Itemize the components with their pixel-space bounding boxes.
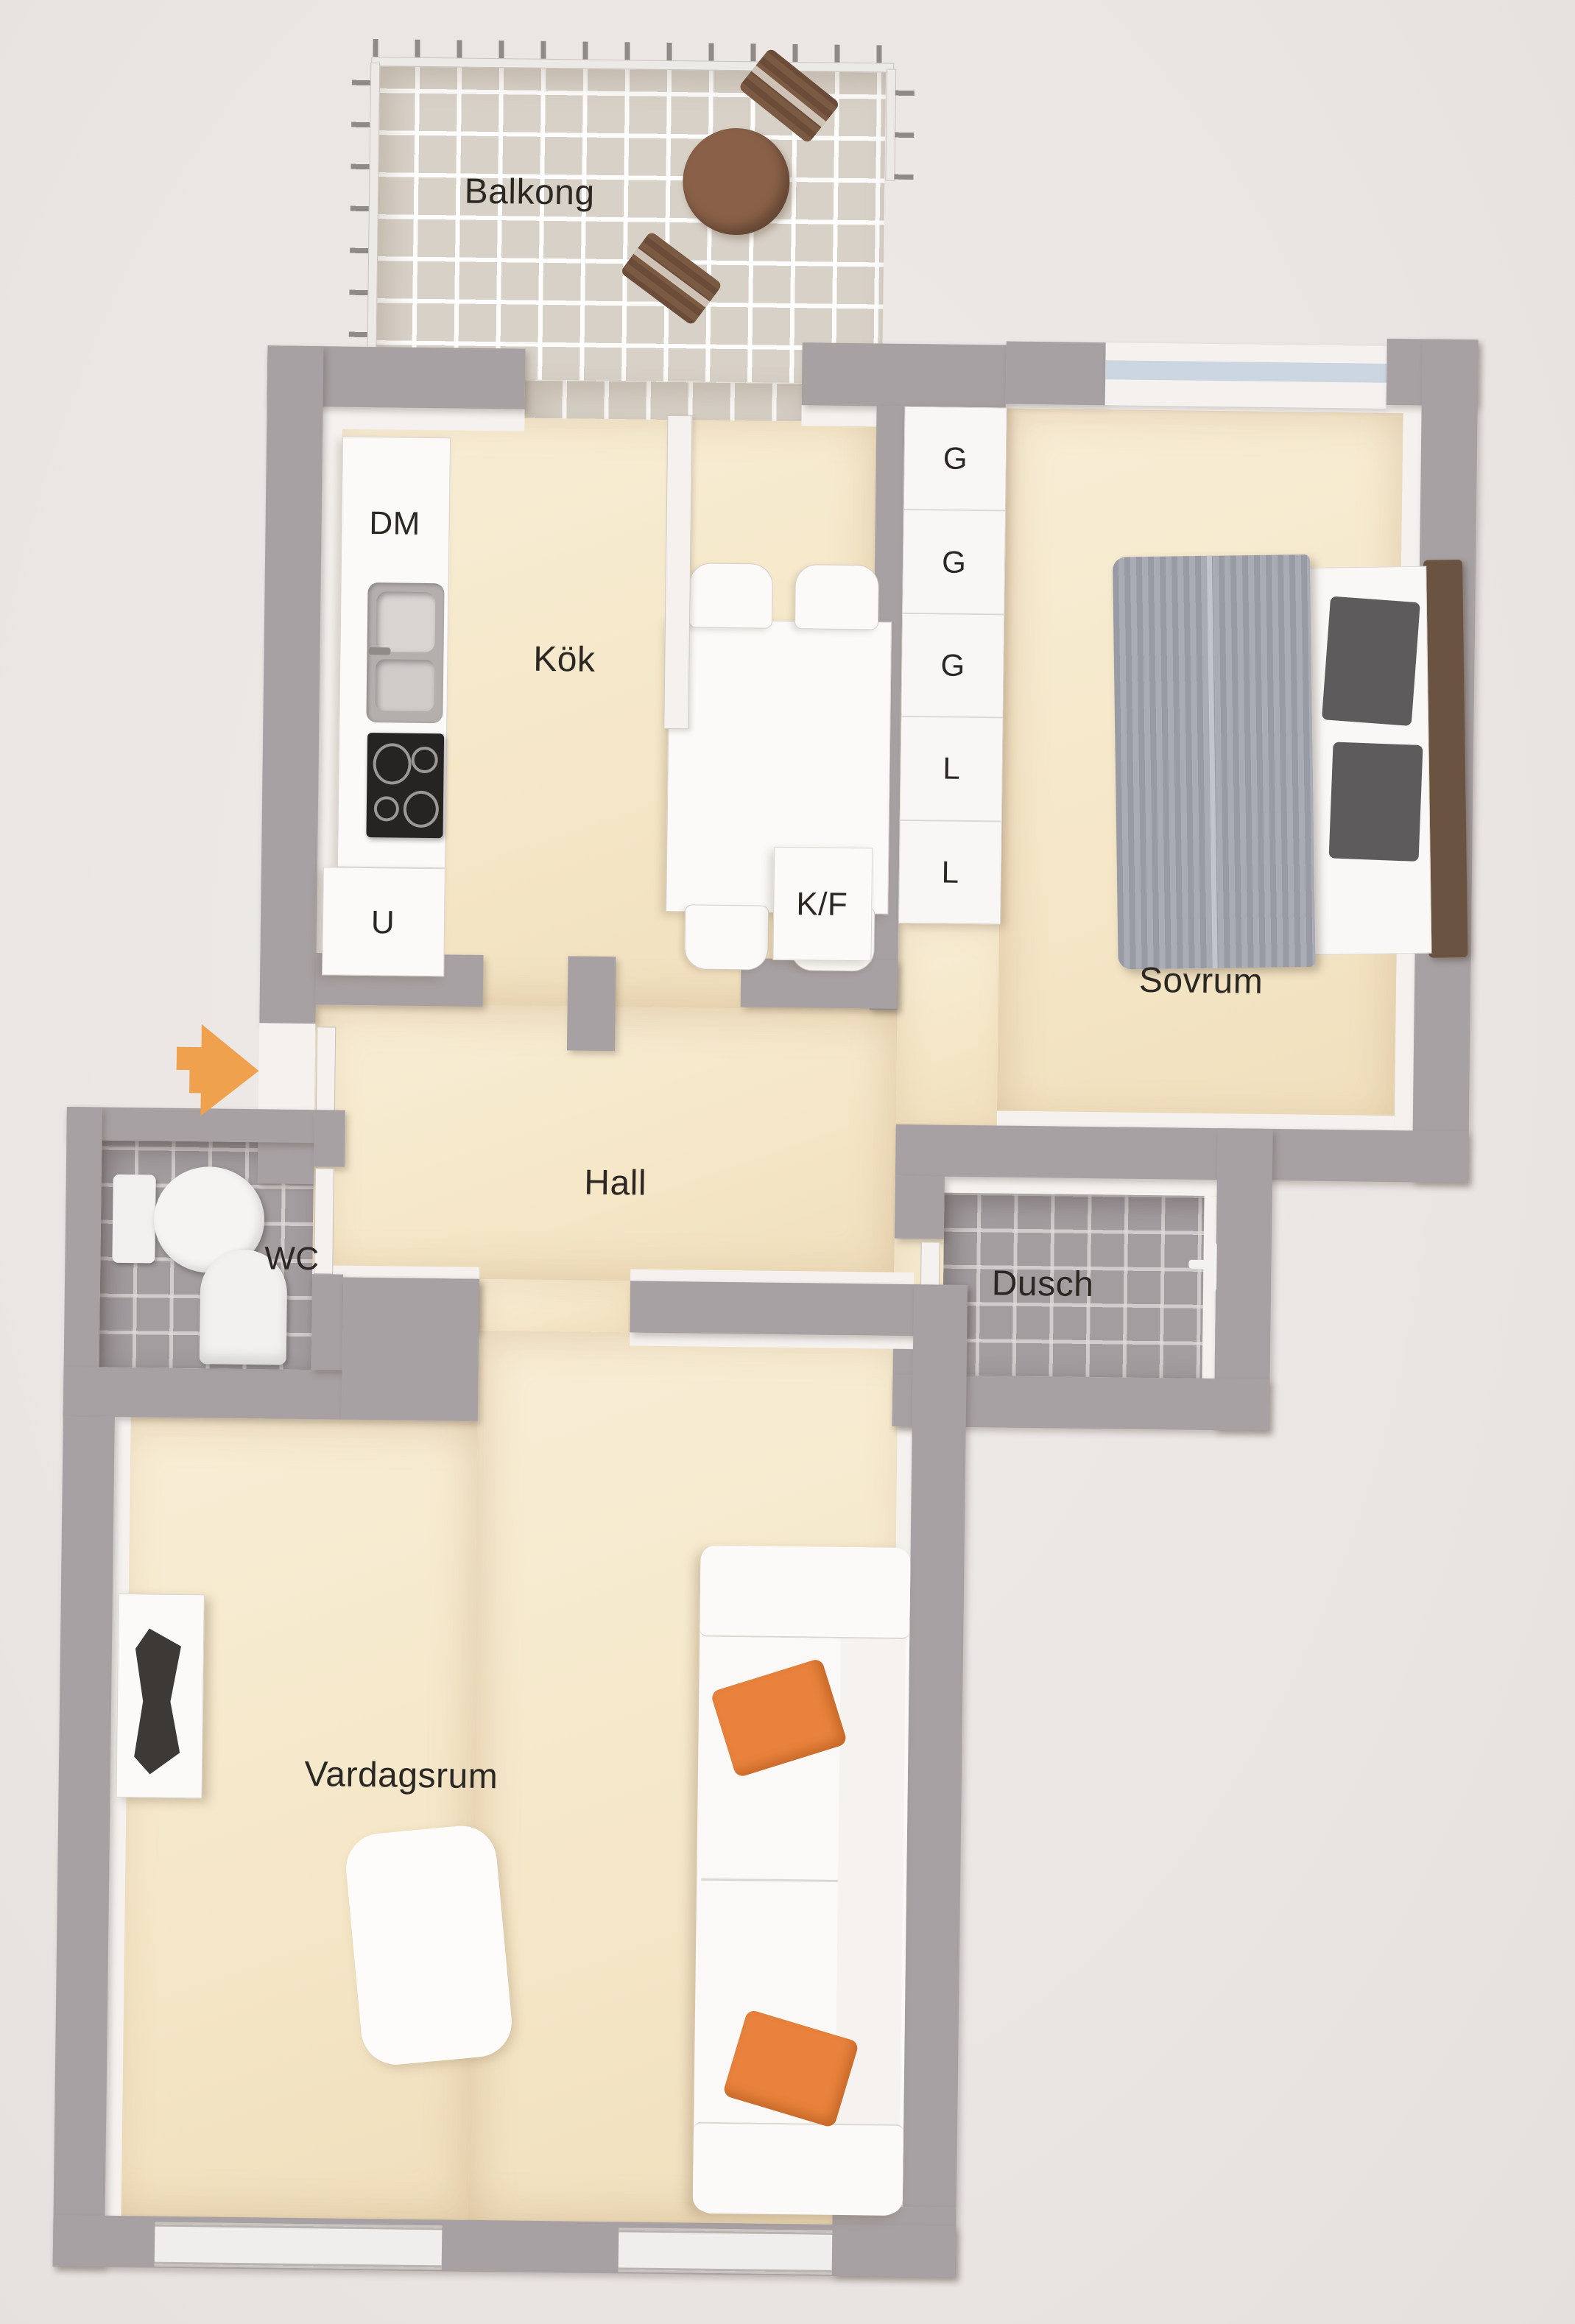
burner: [411, 747, 437, 773]
hall-label: Hall: [541, 1165, 689, 1202]
sofa-armrest: [693, 2122, 903, 2216]
living-room-window: [619, 2228, 833, 2275]
sink-basin: [376, 591, 435, 652]
wall: [258, 1136, 314, 1184]
wall: [311, 1274, 344, 1370]
wall: [342, 1278, 479, 1421]
wall: [314, 1110, 345, 1167]
closet-cell: L: [901, 717, 1003, 822]
balcony-door-threshold: [524, 380, 802, 422]
balcony-label: Balkong: [419, 174, 641, 212]
bed: [1113, 552, 1468, 970]
wall: [53, 1416, 115, 2267]
closet-column: G G G L L: [898, 406, 1007, 925]
apartment-floorplan: Balkong: [0, 0, 1575, 2324]
bedroom-window: [1105, 360, 1387, 383]
blanket-crease: [1207, 556, 1218, 968]
closet-cell: G: [901, 614, 1004, 719]
sofa-back: [834, 1554, 907, 2207]
kitchen-label: Kök: [490, 641, 638, 678]
bedroom-label: Sovrum: [1068, 962, 1334, 1001]
closet-cell: G: [904, 407, 1007, 512]
dining-chair: [684, 904, 769, 970]
closet-label: G: [942, 544, 966, 580]
oven-label: U: [323, 906, 444, 940]
burner: [374, 796, 399, 821]
wall: [567, 956, 616, 1051]
wall: [895, 1124, 1469, 1183]
dishwasher-label: DM: [341, 507, 448, 541]
wall: [895, 1176, 945, 1239]
wall: [63, 1367, 342, 1420]
balcony-railing-posts-right: [894, 69, 915, 180]
dining-chair: [794, 564, 879, 630]
closet-cell: G: [903, 510, 1005, 615]
sink-basin: [376, 659, 435, 711]
shower-fixture-icon: [1188, 1260, 1209, 1269]
dining-chair: [688, 563, 773, 628]
balcony-door: [663, 415, 692, 729]
closet-front-floor: [896, 922, 999, 1126]
closet-cell: L: [899, 820, 1001, 923]
closet-label: L: [941, 854, 959, 890]
bed-blanket: [1113, 554, 1316, 970]
wall: [903, 1284, 968, 2208]
rug: [343, 1823, 515, 2068]
stove: [366, 733, 444, 838]
wc-label: WC: [240, 1242, 344, 1276]
bed-pillow: [1329, 742, 1423, 862]
living-room-label: Vardagsrum: [269, 1756, 535, 1795]
sofa-armrest: [700, 1546, 910, 1639]
burner: [373, 743, 412, 785]
wall: [66, 1107, 314, 1143]
bed-pillow: [1322, 596, 1420, 726]
living-room-floor: [105, 1417, 478, 2220]
entrance-arrow-icon: [176, 1022, 260, 1119]
closet-label: L: [942, 751, 960, 786]
sink-faucet: [368, 647, 390, 655]
wall: [802, 342, 1007, 407]
wall-face: [945, 1177, 1217, 1197]
wall-face: [323, 406, 524, 431]
toilet-tank: [112, 1175, 155, 1264]
shower-label: Dusch: [962, 1266, 1124, 1303]
closet-label: G: [943, 441, 968, 476]
wall: [1006, 342, 1106, 406]
living-room-window: [155, 2222, 443, 2270]
burner: [404, 791, 440, 828]
fridge-freezer-label: K/F: [773, 888, 871, 922]
floorplan-photo: Balkong: [0, 0, 1575, 2324]
wall: [259, 345, 323, 1024]
closet-label: G: [940, 648, 965, 683]
kitchen-sink: [366, 582, 444, 723]
